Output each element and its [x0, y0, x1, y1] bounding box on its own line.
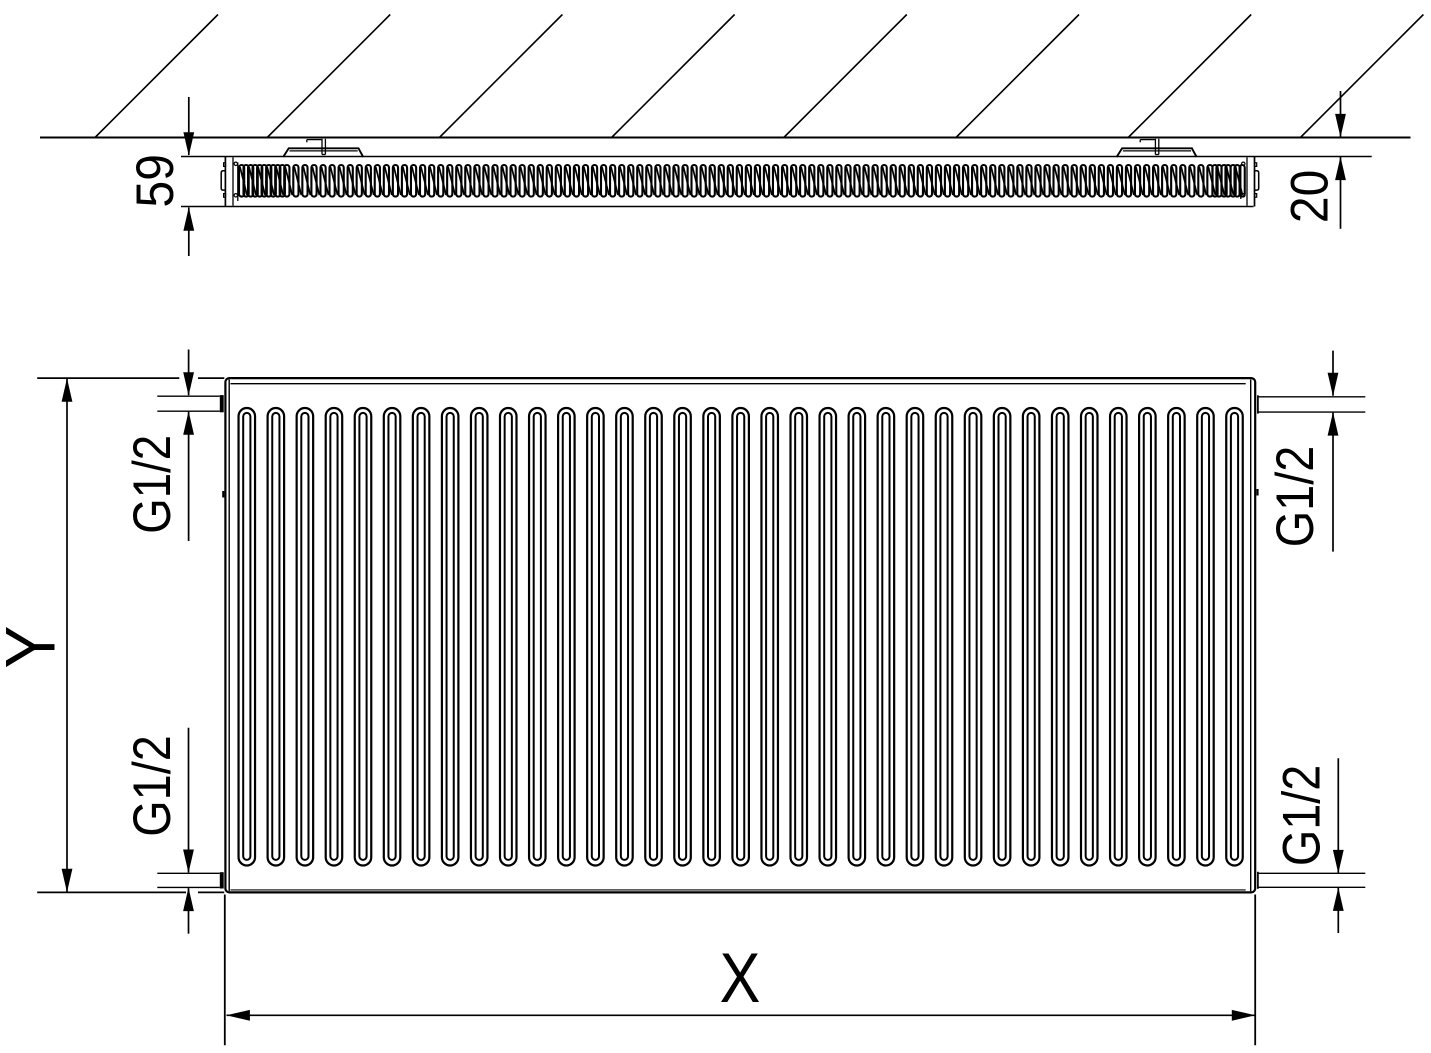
svg-text:Y: Y [0, 626, 70, 669]
svg-text:G1/2: G1/2 [123, 435, 182, 534]
svg-text:20: 20 [1279, 170, 1338, 223]
svg-text:X: X [720, 938, 761, 1017]
svg-text:G1/2: G1/2 [1265, 446, 1324, 547]
svg-text:G1/2: G1/2 [122, 735, 181, 836]
svg-text:G1/2: G1/2 [1272, 765, 1331, 866]
svg-text:59: 59 [125, 154, 184, 207]
